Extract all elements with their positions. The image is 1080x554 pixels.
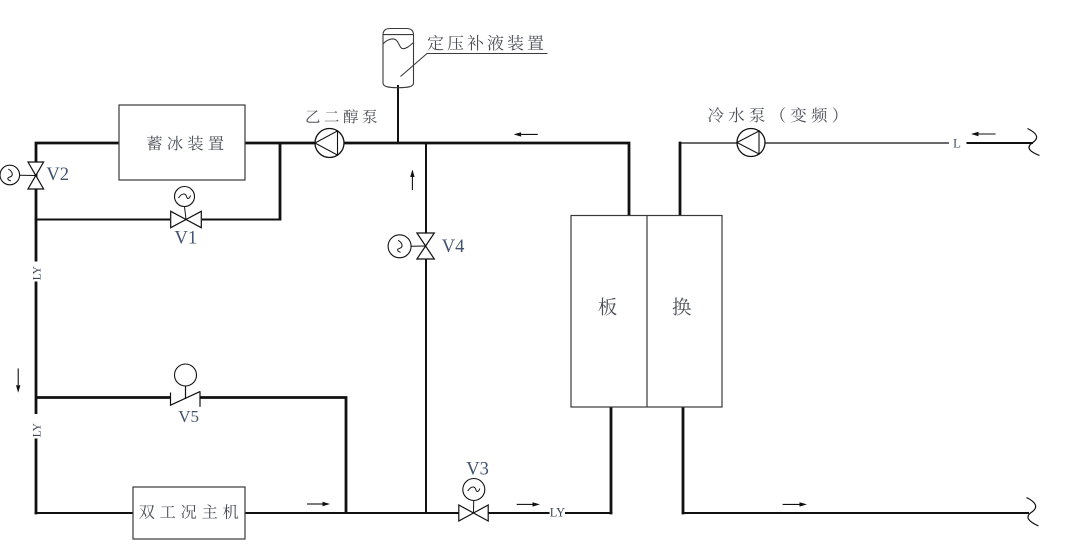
svg-text:LY: LY [31,422,43,437]
svg-text:V1: V1 [175,228,198,248]
svg-text:V2: V2 [46,165,69,185]
svg-text:V4: V4 [442,237,465,257]
svg-text:LY: LY [31,265,43,280]
svg-text:V3: V3 [466,460,489,480]
svg-text:V5: V5 [178,407,199,426]
svg-text:LY: LY [550,506,565,520]
svg-text:L: L [953,136,961,151]
